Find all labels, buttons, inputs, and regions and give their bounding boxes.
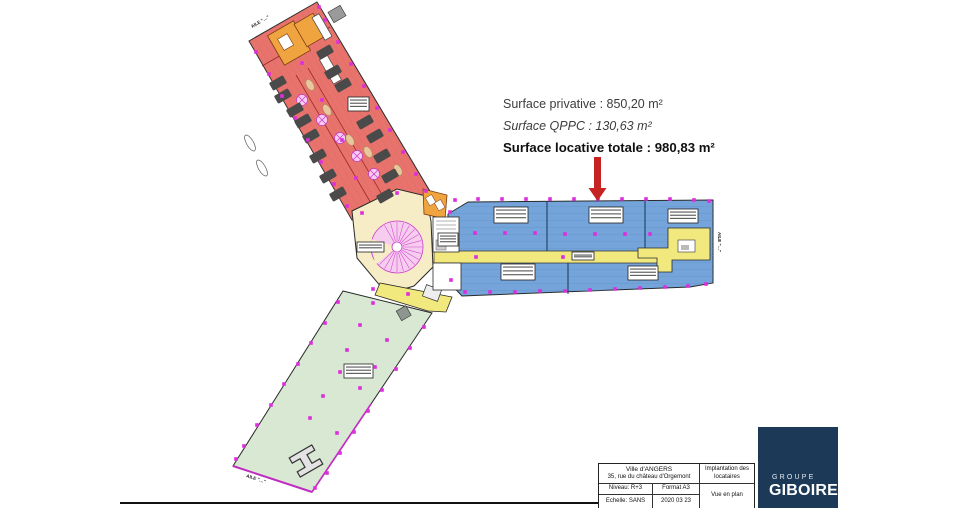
plan-sheet: AILE "…" AILE "…" AILE "…" Surface priva…	[0, 0, 960, 508]
room-label	[494, 207, 528, 223]
wing-label-east: AILE "…"	[717, 232, 722, 252]
sheet-border-line	[120, 502, 598, 504]
giboire-logo: GROUPE GIBOIRE	[758, 427, 838, 508]
scale-cell: Echelle: SANS	[599, 495, 653, 508]
room-white	[433, 263, 461, 290]
room-label	[572, 252, 594, 260]
format-cell: Format A3	[653, 484, 700, 495]
surface-annotation: Surface privative : 850,20 m² Surface QP…	[503, 93, 715, 159]
doc-type-cell: Implantation des locataires	[700, 464, 754, 484]
surface-qppc-line: Surface QPPC : 130,63 m²	[503, 115, 715, 137]
view-cell: Vue en plan	[700, 484, 754, 508]
corridor	[434, 251, 660, 263]
project-cell: Ville d'ANGERS 35, rue du château d'Orge…	[599, 464, 700, 484]
room-label	[348, 97, 369, 111]
surface-locative-line: Surface locative totale : 980,83 m²	[503, 137, 715, 159]
wing-label-north: AILE "…"	[250, 14, 270, 28]
project-address: 35, rue du château d'Orgemont	[599, 474, 699, 481]
date-cell: 2020 03 23	[653, 495, 700, 508]
wing-north-red	[242, 2, 434, 220]
wing-south-green	[233, 291, 432, 492]
project-name: Ville d'ANGERS	[599, 466, 699, 474]
room-label	[357, 242, 384, 252]
doc-type: Implantation des locataires	[702, 466, 752, 480]
title-block: Ville d'ANGERS 35, rue du château d'Orge…	[598, 463, 755, 508]
level-cell: Niveau: R+3	[599, 484, 653, 495]
room-label	[589, 207, 623, 223]
junction-room-orange	[423, 189, 447, 219]
annotation-arrow	[589, 157, 607, 201]
room-label	[668, 209, 698, 223]
logo-group-text: GROUPE	[772, 474, 816, 481]
room-label	[501, 264, 535, 280]
room-label	[438, 233, 458, 246]
room-label	[344, 364, 373, 378]
room-label	[628, 266, 658, 280]
logo-name-text: GIBOIRE	[769, 482, 838, 500]
service-block	[328, 5, 346, 22]
surface-privative-line: Surface privative : 850,20 m²	[503, 93, 715, 115]
